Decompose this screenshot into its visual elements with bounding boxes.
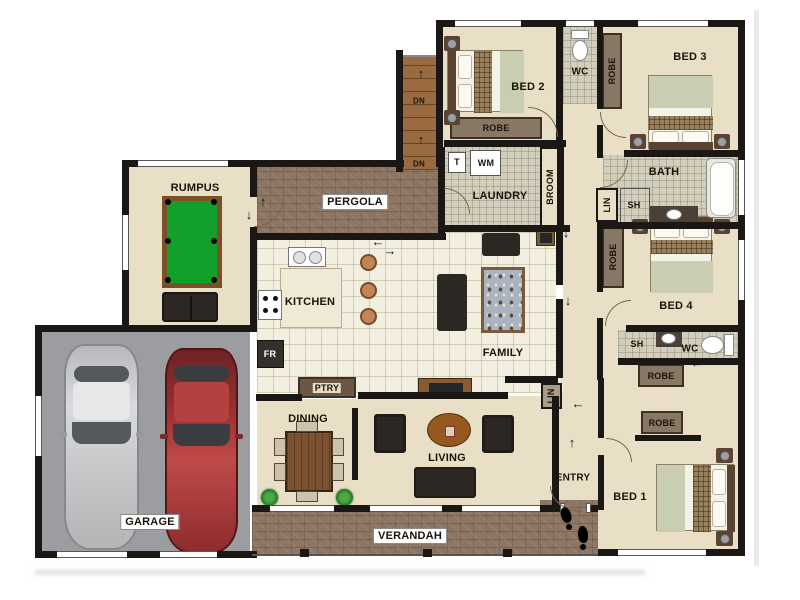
dining-chair — [332, 438, 344, 456]
label-dn-lower: DN — [413, 160, 425, 169]
wall — [597, 125, 603, 158]
label-laundry-tub: T — [454, 157, 460, 167]
opening-arrow-icon: ← — [572, 399, 585, 409]
room-label-bed3: BED 3 — [673, 51, 706, 63]
family-chaise — [437, 274, 467, 331]
nightstand — [716, 448, 733, 463]
room-label-laundry: LAUNDRY — [473, 190, 528, 202]
wall — [556, 299, 563, 378]
table-deco — [445, 426, 455, 437]
window — [35, 396, 42, 456]
coffee-table — [427, 413, 471, 447]
room-label-lin-hall: LIN — [546, 388, 556, 403]
car-windshield — [173, 424, 230, 446]
wall — [444, 140, 566, 147]
family-sofa-top — [482, 233, 520, 256]
room-label-sh-ensuite: SH — [631, 339, 644, 349]
bath-vanity — [650, 206, 698, 223]
window — [122, 215, 129, 270]
room-label-entry: ENTRY — [556, 473, 591, 484]
window — [455, 20, 521, 27]
wall — [250, 233, 446, 240]
room-label-garage: GARAGE — [120, 514, 179, 530]
room-label-bed1: BED 1 — [613, 491, 646, 503]
label-washer: WM — [478, 158, 494, 168]
room-label-lin-bath: LIN — [602, 197, 612, 212]
wall — [597, 318, 603, 380]
rumpus-sofa — [162, 292, 218, 322]
footprint-icon — [580, 544, 586, 550]
nightstand — [630, 134, 646, 149]
dining-chair — [296, 491, 318, 502]
sofa-cushion — [190, 296, 192, 322]
wall — [558, 147, 564, 227]
photo-shadow-right — [754, 10, 759, 566]
verandah-post — [423, 549, 432, 557]
window — [566, 20, 594, 27]
bed-pillow — [712, 469, 726, 495]
bath-tub — [706, 158, 736, 218]
toilet-wc-top-bowl — [572, 40, 588, 61]
room-label-rumpus: RUMPUS — [171, 182, 220, 194]
label-fridge: FR — [264, 349, 276, 359]
bed-pillow — [458, 55, 472, 79]
wall — [250, 167, 257, 197]
car-roof — [73, 382, 130, 420]
label-robe-bed4: ROBE — [608, 244, 618, 271]
opening-arrow-icon: ← — [691, 358, 704, 368]
car-roof — [174, 382, 229, 422]
car-mirror — [235, 434, 243, 439]
living-armchair-right — [482, 415, 514, 453]
opening-arrow-icon: ↑ — [260, 197, 267, 207]
bar-stool — [360, 308, 377, 325]
window — [270, 505, 334, 512]
room-label-bath: BATH — [649, 166, 680, 178]
tub-inner — [710, 162, 734, 216]
family-rug — [481, 267, 525, 333]
stairs-up-arrow-icon: ↑ — [418, 135, 425, 145]
verandah-post — [300, 549, 309, 557]
garage-door — [57, 551, 127, 558]
wall — [598, 378, 604, 438]
car-mirror — [136, 432, 144, 437]
opening-arrow-icon: → — [384, 246, 397, 256]
basin — [661, 333, 676, 344]
opening-arrow-icon: ↓ — [246, 210, 253, 220]
wall — [352, 408, 358, 480]
label-robe-bed3: ROBE — [607, 58, 617, 85]
kitchen-sink — [288, 247, 326, 267]
stairs-up-arrow-icon: ↑ — [418, 69, 425, 79]
wall — [396, 50, 403, 172]
wall — [436, 20, 443, 167]
garage-door — [160, 551, 217, 558]
window — [638, 20, 708, 27]
bar-stool — [360, 282, 377, 299]
dining-table — [285, 431, 333, 492]
bed-blanket — [474, 51, 492, 113]
wall — [618, 358, 738, 365]
room-label-wc-ensuite: WC — [681, 344, 698, 355]
car-mirror — [59, 432, 67, 437]
toilet-ensuite-cistern — [724, 334, 734, 356]
dining-chair — [274, 438, 286, 456]
label-robe-hall: ROBE — [648, 371, 675, 381]
plant — [261, 489, 278, 506]
verandah-post — [503, 549, 512, 557]
bed-headboard — [727, 465, 735, 532]
bed1-bed — [656, 464, 734, 531]
window — [618, 549, 706, 556]
opening-arrow-icon: ↑ — [569, 438, 576, 448]
bed-blanket — [649, 116, 713, 130]
wall — [438, 225, 570, 232]
car-rear-window — [174, 366, 229, 381]
label-dn-upper: DN — [413, 97, 425, 106]
wall — [598, 455, 604, 510]
wall — [597, 27, 603, 109]
wall — [624, 150, 738, 157]
footprint-icon — [566, 524, 572, 530]
room-label-bed4: BED 4 — [659, 300, 692, 312]
floor-plan: ↑ ↑ ↓ ↓ ← ← → ↑ ↓ ← ↑ RUMPUS PERGOLA KIT… — [0, 0, 800, 600]
opening-arrow-icon: ↓ — [565, 296, 572, 306]
wall — [358, 392, 508, 399]
window — [738, 160, 745, 215]
wall — [635, 435, 701, 441]
bed-duvet — [651, 261, 713, 293]
tv — [429, 383, 463, 392]
window — [462, 505, 540, 512]
car-rear-window — [74, 366, 129, 382]
burner — [263, 296, 268, 301]
room-label-wc-top: WC — [571, 67, 588, 78]
living-armchair-left — [374, 414, 406, 453]
basin — [666, 209, 682, 220]
toilet-wc-top — [571, 30, 589, 39]
cooktop — [258, 290, 282, 320]
room-label-family: FAMILY — [483, 347, 524, 359]
room-label-living: LIVING — [428, 452, 466, 464]
sink-bowl — [309, 251, 322, 264]
nightstand — [714, 134, 730, 149]
family-opening — [556, 285, 563, 299]
pool-pocket — [165, 199, 171, 205]
wall — [626, 325, 738, 332]
entry-door-post — [586, 503, 591, 513]
label-robe-bed2: ROBE — [483, 123, 510, 133]
room-label-dining: DINING — [288, 413, 328, 425]
nightstand — [716, 531, 733, 546]
window — [138, 160, 228, 167]
room-label-pergola: PERGOLA — [322, 194, 388, 210]
bed-headboard — [448, 51, 456, 113]
bed-headboard — [649, 142, 713, 150]
wall — [597, 222, 603, 292]
room-label-broom: BROOM — [545, 169, 555, 205]
bed3-bed — [648, 75, 712, 149]
living-sofa — [414, 467, 476, 498]
wall — [505, 376, 558, 383]
bed-duvet — [649, 76, 713, 108]
wall — [250, 227, 257, 332]
window — [370, 505, 442, 512]
bed-blanket — [693, 465, 711, 532]
opening-arrow-icon: ↓ — [563, 228, 570, 238]
window — [738, 240, 745, 300]
bed-blanket — [651, 240, 713, 254]
ensuite-vanity — [656, 331, 682, 347]
toilet-ensuite-bowl — [701, 336, 724, 354]
bed-pillow — [458, 84, 472, 108]
sink-bowl — [293, 251, 306, 264]
wall — [598, 222, 738, 229]
wall — [35, 325, 257, 332]
room-label-kitchen: KITCHEN — [285, 296, 335, 308]
car-mirror — [160, 434, 168, 439]
room-label-bed2: BED 2 — [511, 81, 544, 93]
label-robe-bed1: ROBE — [649, 418, 676, 428]
car-windshield — [72, 422, 131, 444]
photo-shadow-bottom — [35, 570, 645, 575]
label-pantry: PTRY — [313, 383, 341, 393]
plant — [336, 489, 353, 506]
dining-chair — [274, 463, 286, 481]
room-label-sh-bath: SH — [628, 200, 641, 210]
nightstand — [444, 110, 460, 125]
bar-stool — [360, 254, 377, 271]
nightstand — [444, 36, 460, 51]
dining-chair — [332, 463, 344, 481]
pool-table — [162, 196, 222, 288]
bed-pillow — [712, 501, 726, 527]
wall — [256, 394, 302, 401]
bed-duvet — [657, 465, 685, 532]
room-label-verandah: VERANDAH — [373, 528, 447, 544]
tv-screen — [540, 233, 552, 243]
